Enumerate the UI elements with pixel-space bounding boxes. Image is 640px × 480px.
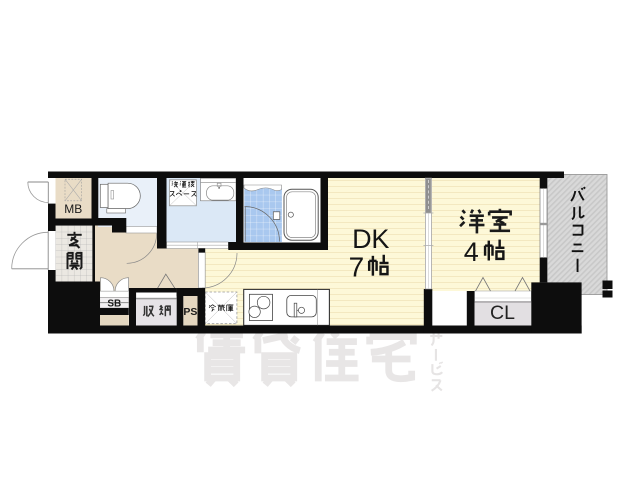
- svg-text:7: 7: [349, 252, 365, 283]
- svg-text:DK: DK: [352, 224, 389, 254]
- svg-text:4: 4: [464, 237, 479, 267]
- svg-text:PS: PS: [183, 306, 197, 318]
- svg-text:CL: CL: [490, 302, 515, 324]
- svg-text:MB: MB: [64, 202, 82, 216]
- svg-text:SB: SB: [107, 298, 121, 309]
